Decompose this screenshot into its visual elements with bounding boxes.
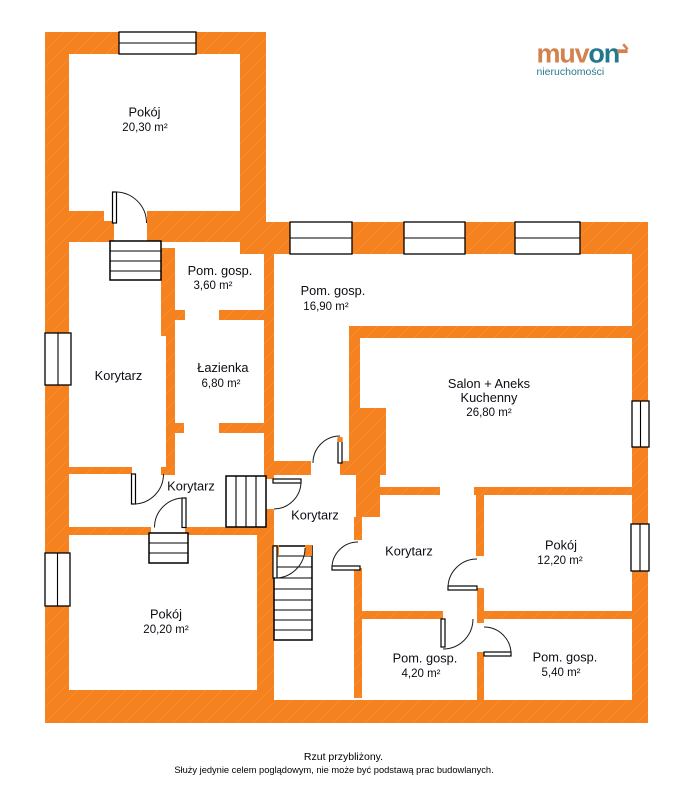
svg-text:Kuchenny: Kuchenny (461, 390, 519, 405)
svg-text:Pokój: Pokój (150, 607, 182, 622)
svg-text:4,20 m²: 4,20 m² (402, 668, 441, 680)
svg-text:nieruchomości: nieruchomości (537, 66, 605, 78)
svg-text:Pom. gosp.: Pom. gosp. (533, 650, 598, 665)
svg-text:Pom. gosp.: Pom. gosp. (393, 651, 458, 666)
svg-text:20,30 m²: 20,30 m² (122, 122, 168, 134)
svg-text:12,20 m²: 12,20 m² (537, 555, 583, 567)
svg-text:Pokój: Pokój (545, 538, 577, 553)
svg-text:5,40 m²: 5,40 m² (542, 667, 581, 679)
svg-text:Korytarz: Korytarz (291, 508, 339, 523)
svg-text:6,80 m²: 6,80 m² (202, 378, 241, 390)
svg-text:muvon: muvon (537, 39, 620, 69)
svg-text:16,90 m²: 16,90 m² (303, 301, 349, 313)
svg-text:Pom. gosp.: Pom. gosp. (301, 283, 366, 298)
svg-text:Korytarz: Korytarz (167, 479, 215, 494)
svg-text:20,20 m²: 20,20 m² (143, 624, 189, 636)
svg-text:Korytarz: Korytarz (385, 544, 433, 559)
svg-text:Pom. gosp.: Pom. gosp. (188, 263, 253, 278)
svg-text:26,80 m²: 26,80 m² (466, 407, 512, 419)
svg-text:3,60 m²: 3,60 m² (194, 280, 233, 292)
svg-text:Łazienka: Łazienka (197, 360, 249, 375)
svg-text:Korytarz: Korytarz (95, 368, 143, 383)
svg-text:Służy jedynie celem poglądowym: Służy jedynie celem poglądowym, nie może… (174, 765, 493, 775)
svg-text:Pokój: Pokój (128, 105, 160, 120)
svg-text:Salon + Aneks: Salon + Aneks (448, 376, 530, 391)
svg-text:Rzut przybliżony.: Rzut przybliżony. (304, 751, 383, 763)
